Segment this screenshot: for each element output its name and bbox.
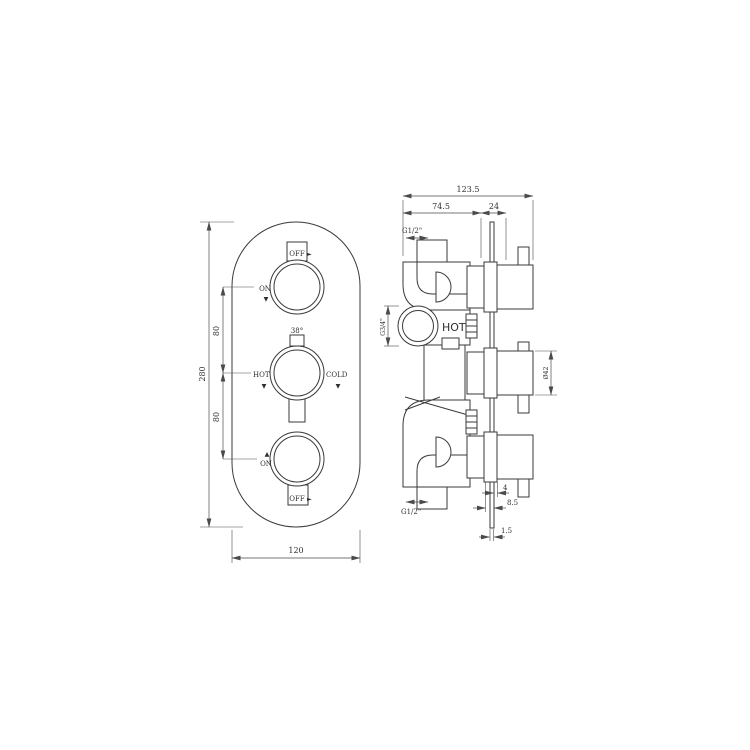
top-on-label: ON [259,285,271,293]
dim-gap-upper-label: 80 [212,326,221,336]
dim-rough-in-label: 74.5 [432,202,450,211]
dim-flange-depth-4: 4 [482,482,509,497]
up-arrow-icon: ▲ [265,451,270,458]
hot-label: HOT [253,371,270,379]
middle-knob-stem [289,399,305,422]
inlet-nut [442,338,459,349]
technical-drawing-canvas: 280 80 80 120 OFF ► ON ▼ [0,0,750,750]
ribbed-detail-upper [466,314,477,338]
right-arrow-icon: ► [307,251,312,258]
down-arrow-icon: ▼ [262,383,267,390]
down-arrow-icon: ▼ [336,383,341,390]
bottom-handle-flange [484,432,497,482]
dim-flange-depth-label: 4 [503,484,508,492]
dim-plate-thickness-label: 1.5 [501,527,512,535]
cold-label: COLD [326,371,348,379]
top-port-label: G1/2" [402,227,422,235]
middle-knob-outer [270,346,324,400]
bottom-on-label: ON [260,460,272,468]
top-handle-cylinder [497,265,533,309]
top-outlet-pipe [417,240,447,262]
top-off-label: OFF [289,250,305,258]
front-view: 280 80 80 120 OFF ► ON ▼ [198,222,360,563]
dim-gap-lower-label: 80 [212,412,221,422]
body-mid-housing [424,345,465,407]
bottom-outlet-pipe [417,487,447,509]
temp-38-label: 38° [291,327,303,335]
top-handle-flange [484,262,497,312]
inlet-thread-label: G3/4" [380,318,387,336]
dim-plate-to-body-8-5: 8.5 [473,482,518,512]
bottom-knob-outer [270,432,324,486]
top-handle-stem [518,247,529,265]
hot-inlet-label: HOT [442,321,466,334]
top-port-callout: G1/2" [402,227,428,238]
temp-override-button [290,335,304,346]
bottom-off-label: OFF [289,495,305,503]
valve-drawing: 280 80 80 120 OFF ► ON ▼ [0,0,750,750]
dim-width-120: 120 [232,530,360,563]
middle-cartridge-neck [467,352,485,394]
bottom-port-label: G1/2" [401,508,421,516]
ribbed-detail-lower [466,410,477,434]
dim-trim-label: 24 [489,202,499,211]
dim-handle-diameter: Ø42 [535,351,557,395]
bottom-handle-stem [518,479,529,497]
dim-inlet-thread: G3/4" [380,306,399,346]
middle-handle-cylinder [497,351,533,395]
dim-width-label: 120 [288,546,303,555]
bottom-handle-cylinder [497,435,533,479]
side-view: HOT G3/4" [380,185,557,541]
dim-plate-to-body-label: 8.5 [507,499,518,507]
dim-height-label: 280 [198,366,207,381]
top-cartridge-neck [467,266,485,308]
hot-inlet-outer [398,306,438,346]
middle-handle-flange [484,348,497,398]
dim-overall-label: 123.5 [457,185,480,194]
right-arrow-icon: ► [307,496,312,503]
middle-handle-stem [518,395,529,413]
dim-handle-diameter-label: Ø42 [543,366,550,379]
down-arrow-icon: ▼ [264,296,269,303]
dim-plate-thickness-1-5: 1.5 [479,527,512,541]
middle-handle-button [518,342,529,351]
top-knob-outer [270,260,324,314]
bottom-cartridge-neck [467,436,485,478]
